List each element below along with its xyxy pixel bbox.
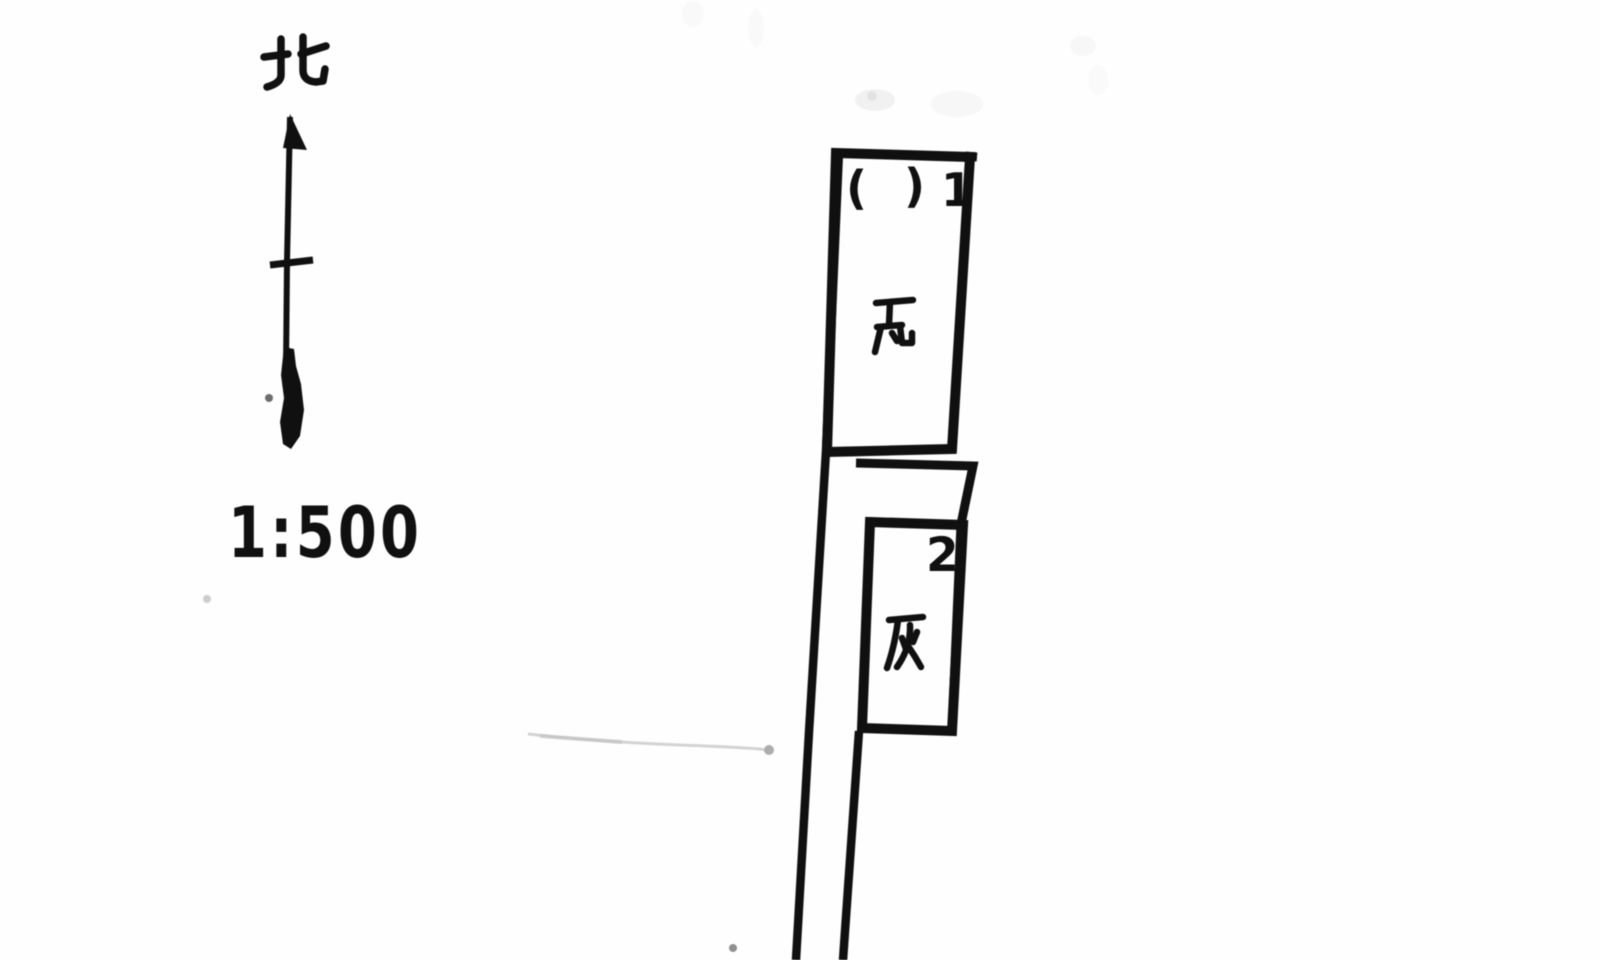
building-1-paren-close: ): [904, 159, 925, 213]
north-arrow-icon: [270, 114, 313, 449]
building-2: 2: [862, 522, 963, 731]
building-2-number: 2: [926, 528, 959, 583]
map-canvas: 1:500 ( ) 1 2: [0, 0, 1600, 960]
building-1-paren-open: (: [846, 161, 867, 215]
tile-kanji-stroke: [892, 333, 897, 341]
smudge: [748, 9, 764, 47]
speck: [729, 944, 737, 952]
mortar-kanji-stroke: [908, 646, 921, 667]
speck: [265, 394, 273, 402]
faint-pencil-line: [540, 736, 622, 742]
building-1-number: 1: [941, 163, 973, 217]
scale-label-group: 1:500: [228, 492, 422, 574]
compass: [264, 37, 326, 449]
smudge: [1070, 36, 1096, 56]
building-2-material-kanji: [887, 617, 923, 668]
mortar-kanji-stroke: [913, 632, 917, 642]
north-arrow-head: [283, 114, 307, 150]
building-1-top-edge-overshoot: [965, 156, 977, 157]
strip-inner-line: [843, 731, 859, 960]
tile-kanji-stroke: [876, 300, 913, 303]
north-arrow-tail-blob: [280, 347, 304, 449]
mortar-kanji-stroke: [887, 620, 898, 668]
building-1-material-kanji: [875, 300, 913, 352]
speck: [764, 745, 774, 755]
smudge: [682, 1, 704, 27]
survey-map-scan: 1:500 ( ) 1 2: [0, 0, 1600, 960]
speck: [203, 595, 211, 603]
tile-kanji-stroke: [875, 327, 881, 352]
north-arrow-shaft: [286, 117, 290, 370]
scale-label: 1:500: [228, 492, 422, 574]
north-kanji: [264, 37, 326, 87]
smudge: [1088, 65, 1108, 95]
mortar-kanji-stroke: [889, 617, 923, 620]
smudge: [931, 91, 983, 117]
smudge: [867, 91, 877, 101]
north-kanji-stroke: [267, 39, 281, 87]
north-arrow-crossbar: [270, 260, 313, 265]
tile-kanji-stroke: [889, 302, 890, 325]
building-1: ( ) 1: [827, 153, 977, 452]
tile-kanji-stroke: [900, 326, 912, 343]
